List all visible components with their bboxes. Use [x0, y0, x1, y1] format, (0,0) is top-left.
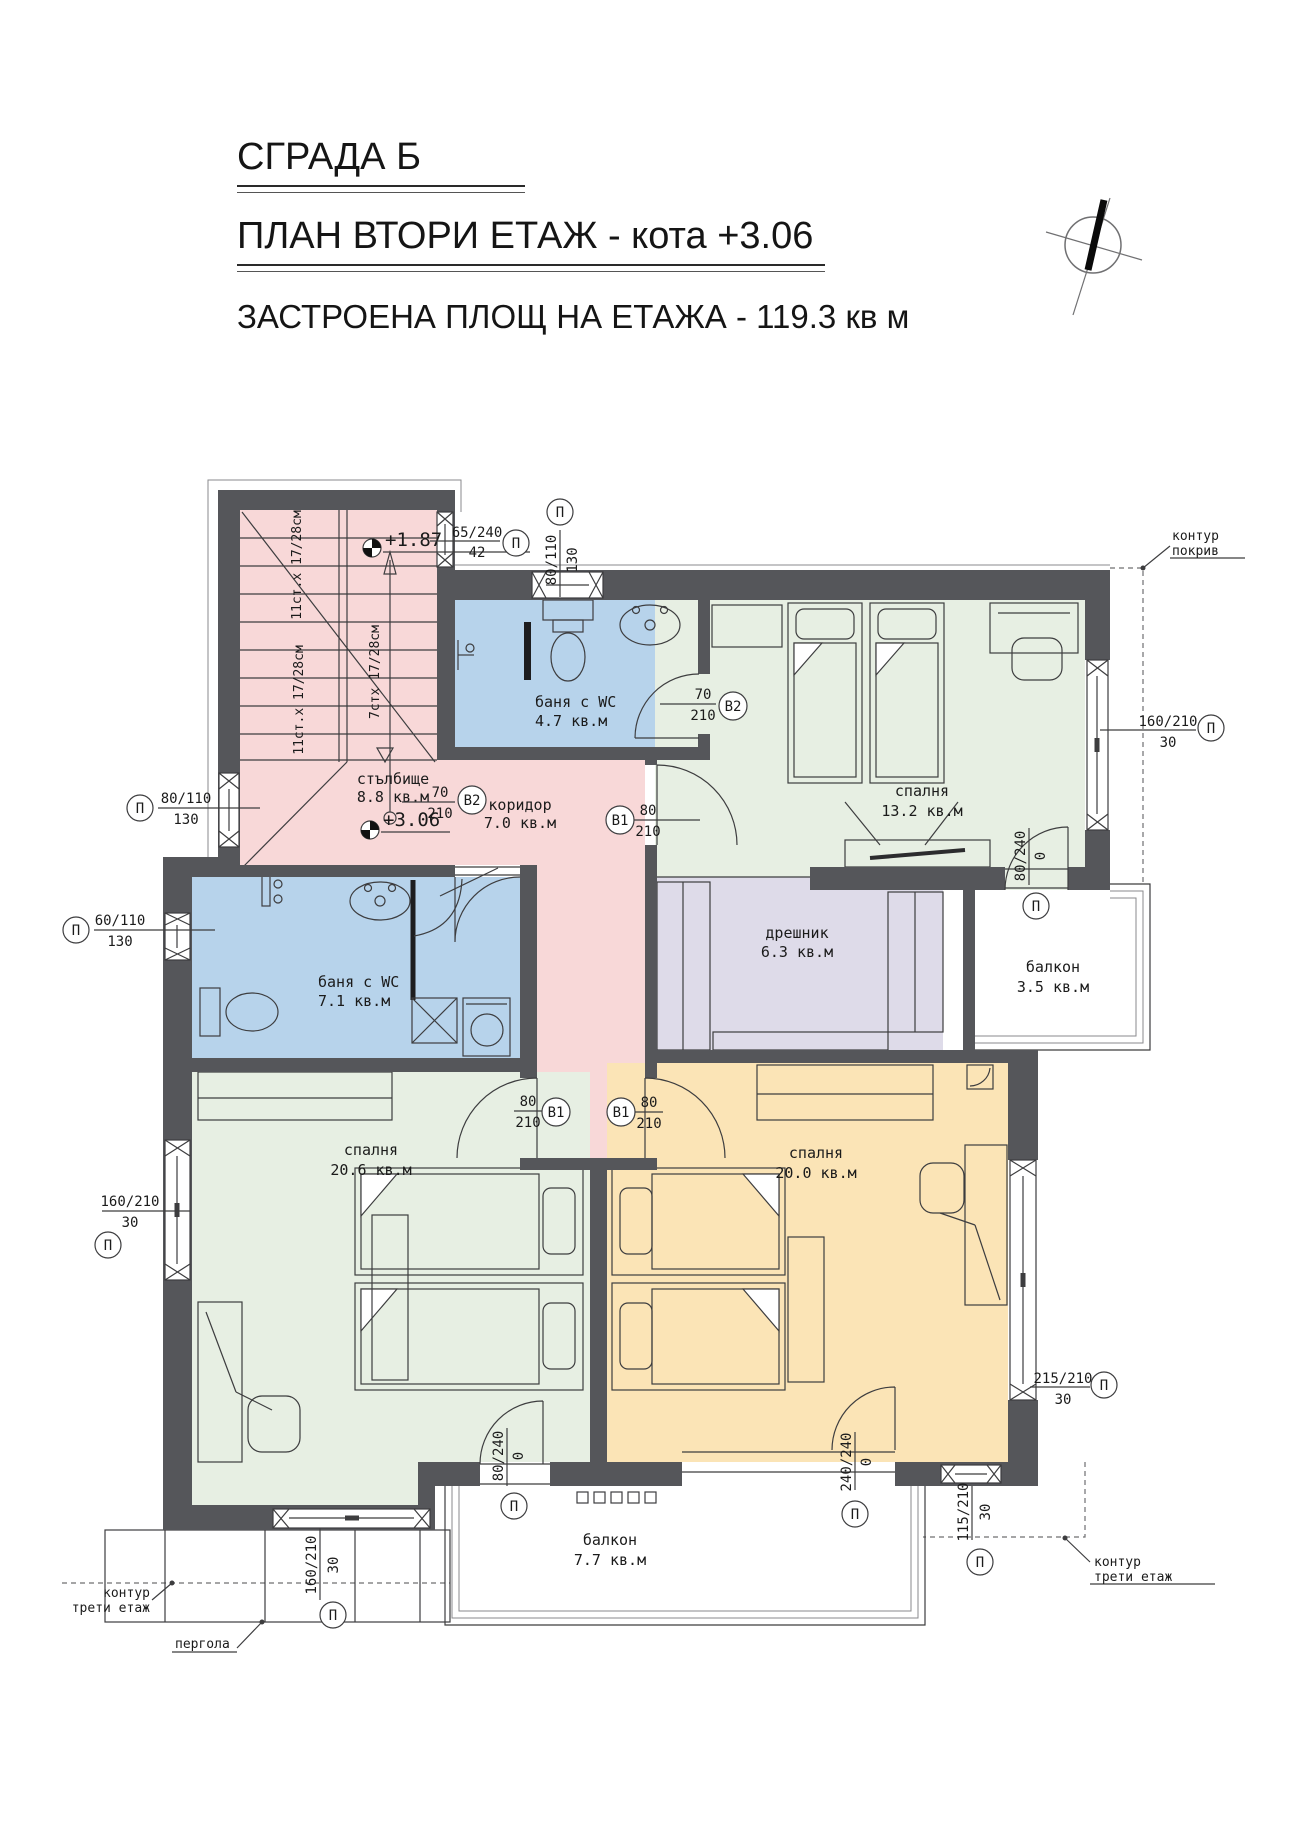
room-area: 7.1 кв.м: [318, 992, 390, 1010]
room-area: 20.6 кв.м: [330, 1161, 411, 1179]
svg-text:42: 42: [469, 545, 486, 561]
svg-text:70: 70: [695, 687, 712, 703]
stair-note: 11ст.х 17/28см: [290, 510, 305, 620]
window-symbol: [1010, 1160, 1036, 1400]
svg-text:70: 70: [432, 785, 449, 801]
svg-text:210: 210: [515, 1115, 540, 1131]
window-symbol: [273, 1509, 430, 1528]
svg-text:30: 30: [978, 1504, 994, 1521]
room-name: дрешник: [765, 924, 828, 942]
room-name: коридор: [488, 796, 551, 814]
svg-text:210: 210: [690, 708, 715, 724]
svg-text:160/210: 160/210: [304, 1535, 320, 1594]
svg-text:80: 80: [640, 803, 657, 819]
svg-text:30: 30: [1055, 1392, 1072, 1408]
svg-text:80: 80: [641, 1095, 658, 1111]
svg-text:160/210: 160/210: [100, 1194, 159, 1210]
room-area: 13.2 кв.м: [881, 802, 962, 820]
svg-text:0: 0: [1033, 852, 1049, 860]
svg-text:210: 210: [636, 1116, 661, 1132]
svg-text:П: П: [1100, 1378, 1108, 1394]
level-text: +1.87: [385, 529, 442, 551]
svg-text:пергола: пергола: [175, 1637, 230, 1652]
svg-text:трети етаж: трети етаж: [72, 1601, 150, 1616]
window-symbol: [165, 1140, 190, 1280]
room-closet: [657, 877, 943, 1050]
window-symbol: [1087, 660, 1108, 830]
room-area: 6.3 кв.м: [761, 943, 833, 961]
svg-text:П: П: [1207, 721, 1215, 737]
window-symbol: [219, 773, 239, 847]
floor-plan-drawing: 11ст.х 17/28см 11ст.х 17/28см 7стх 17/28…: [0, 0, 1300, 1840]
svg-text:трети етаж: трети етаж: [1094, 1570, 1172, 1585]
third-floor-contour-right-label: контур трети етаж: [1063, 1536, 1216, 1586]
svg-text:80: 80: [520, 1094, 537, 1110]
svg-text:П: П: [329, 1608, 337, 1624]
dim-label-w160-east: 160/210 30 П: [1100, 714, 1224, 751]
svg-text:П: П: [104, 1238, 112, 1254]
north-arrow-icon: [1046, 198, 1142, 315]
roof-contour-label: контур покрив: [1141, 529, 1246, 571]
pergola-structure: [105, 1530, 450, 1622]
svg-text:80/240: 80/240: [1013, 831, 1029, 882]
room-area: 20.0 кв.м: [775, 1164, 856, 1182]
level-marker: [361, 821, 379, 839]
dim-label-w115: 115/210 30 П: [956, 1482, 994, 1575]
svg-text:0: 0: [511, 1452, 527, 1460]
svg-text:115/210: 115/210: [956, 1482, 972, 1541]
svg-text:130: 130: [565, 547, 581, 572]
svg-text:65/240: 65/240: [452, 525, 503, 541]
partition: [524, 622, 531, 680]
room-bedroom-se: [607, 1063, 1008, 1462]
room-area: 8.8 кв.м: [357, 788, 429, 806]
svg-text:160/210: 160/210: [1138, 714, 1197, 730]
svg-text:B1: B1: [612, 813, 629, 829]
svg-text:П: П: [136, 801, 144, 817]
room-name: спалня: [344, 1141, 398, 1159]
svg-text:B2: B2: [464, 793, 481, 809]
window-symbol: [165, 913, 190, 960]
level-marker: [363, 539, 381, 557]
room-name: спалня: [895, 782, 949, 800]
svg-text:0: 0: [859, 1458, 875, 1466]
window-symbol: [532, 572, 603, 598]
dim-label-w160-south: 160/210 30 П: [304, 1528, 346, 1628]
room-area: 3.5 кв.м: [1017, 978, 1089, 996]
svg-text:B1: B1: [613, 1105, 630, 1121]
svg-text:контур: контур: [103, 1586, 150, 1601]
svg-text:П: П: [976, 1555, 984, 1571]
svg-text:контур: контур: [1094, 1555, 1141, 1570]
room-area: 7.7 кв.м: [574, 1551, 646, 1569]
svg-text:30: 30: [1160, 735, 1177, 751]
room-name: баня с WC: [535, 693, 616, 711]
stair-note: 11ст.х 17/28см: [292, 645, 307, 755]
balcony-spindles: [577, 1492, 656, 1503]
room-name: стълбище: [357, 770, 429, 788]
room-name: балкон: [583, 1531, 637, 1549]
svg-text:B2: B2: [725, 699, 742, 715]
svg-text:B1: B1: [548, 1105, 565, 1121]
svg-text:30: 30: [326, 1557, 342, 1574]
stair-note: 7стх 17/28см: [368, 625, 383, 719]
room-name: баня с WC: [318, 973, 399, 991]
svg-text:210: 210: [427, 806, 452, 822]
svg-text:130: 130: [173, 812, 198, 828]
svg-text:80/240: 80/240: [491, 1431, 507, 1482]
pergola-label: пергола: [172, 1620, 265, 1653]
svg-text:30: 30: [122, 1215, 139, 1231]
room-name: спалня: [789, 1144, 843, 1162]
svg-text:П: П: [851, 1507, 859, 1523]
svg-text:П: П: [1032, 899, 1040, 915]
third-floor-contour-left-label: контур трети етаж: [72, 1581, 175, 1617]
svg-text:210: 210: [635, 824, 660, 840]
svg-text:П: П: [72, 923, 80, 939]
dim-label-w215: 215/210 30 П: [1030, 1371, 1117, 1408]
window-symbol: [941, 1465, 1001, 1483]
floor-plan-page: СГРАДА Б ПЛАН ВТОРИ ЕТАЖ - кота +3.06 ЗА…: [0, 0, 1300, 1840]
svg-text:215/210: 215/210: [1033, 1371, 1092, 1387]
room-name: балкон: [1026, 958, 1080, 976]
svg-text:П: П: [510, 1499, 518, 1515]
svg-text:240/240: 240/240: [839, 1432, 855, 1491]
svg-text:130: 130: [107, 934, 132, 950]
svg-text:контур: контур: [1172, 529, 1219, 544]
svg-text:покрив: покрив: [1172, 544, 1219, 559]
svg-text:80/110: 80/110: [161, 791, 212, 807]
room-area: 7.0 кв.м: [484, 814, 556, 832]
svg-text:80/110: 80/110: [544, 535, 560, 586]
svg-text:П: П: [512, 536, 520, 552]
svg-text:П: П: [556, 505, 564, 521]
svg-text:60/110: 60/110: [95, 913, 146, 929]
room-area: 4.7 кв.м: [535, 712, 607, 730]
